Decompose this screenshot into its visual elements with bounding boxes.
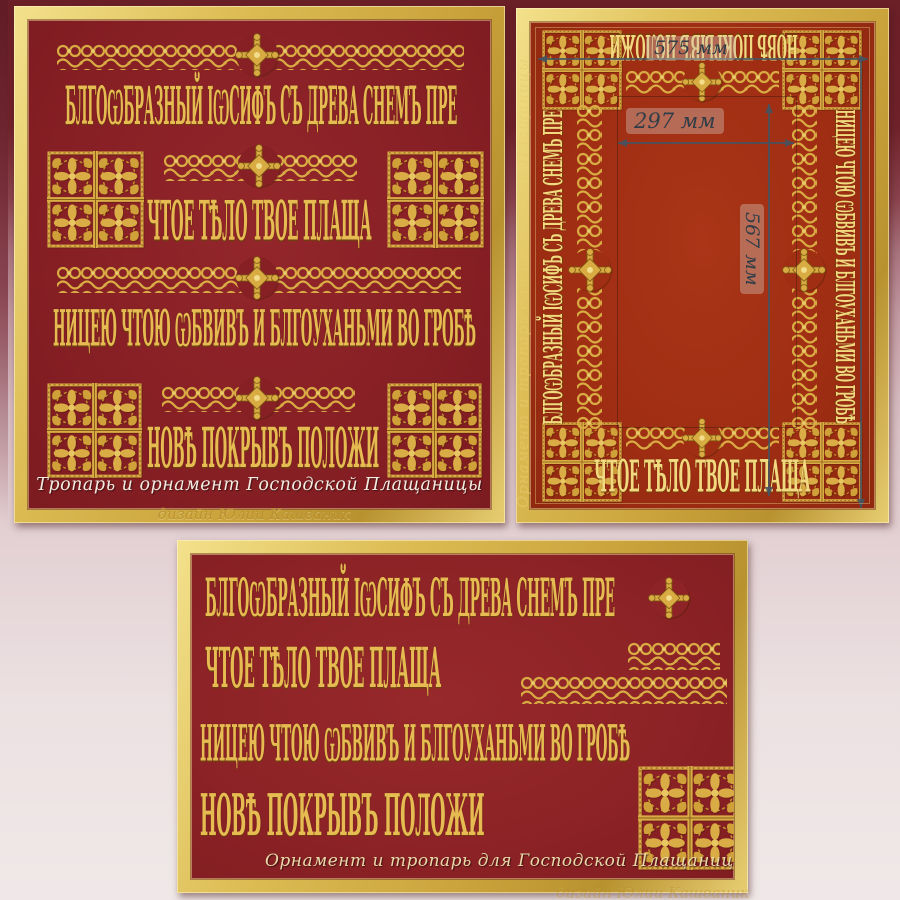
dimension-arrow: [765, 487, 773, 496]
dimension-label-inner-width: 297 мм: [626, 108, 724, 134]
lace-band-ornament: [521, 676, 727, 704]
troparion-line-4: НОВѢ ПОКРЫВЪ ПОЛОЖИ: [200, 786, 484, 844]
design-proof-sheet: БЛГОѠБРАЗНЫЙ ІѠСИФЪ СЪ ДРЕВА СНЕМЪ ПРЕ Ч…: [0, 0, 900, 900]
dimension-arrow: [857, 499, 865, 508]
corner-square-ornament: [47, 383, 142, 478]
panel-frame-field: НОВѢ ПОКРЫВЪ ПОЛОЖИ БЛГОѠБРАЗНЫЙ ІѠСИФЪ …: [530, 22, 875, 509]
corner-square-ornament: [387, 383, 482, 478]
budded-cross-icon: [235, 33, 279, 77]
left-edge-shadow: [0, 0, 8, 522]
panel-caption: Тропарь и орнамент Господской Плащаницы: [28, 475, 491, 495]
troparion-line-3: НИЦЕЮ ЧТОЮ ѠБВИВЪ И БЛГОУХАНЬМИ ВО ГРОБѢ: [53, 304, 476, 353]
designer-watermark: Орнамент и тропарь для Господской Плащан…: [514, 38, 532, 508]
dimension-line-inner-height: [768, 104, 770, 496]
troparion-line-2: ЧТОЕ ТѢЛО ТВОЕ ПЛАЩА: [147, 194, 371, 249]
budded-cross-icon: [648, 577, 690, 619]
dimension-label-inner-height: 567 мм: [740, 204, 764, 294]
dimension-arrow: [785, 139, 794, 147]
troparion-line-2: ЧТОЕ ТѢЛО ТВОЕ ПЛАЩА: [205, 642, 441, 697]
budded-cross-icon: [568, 248, 612, 292]
corner-square-ornament: [47, 151, 144, 248]
corner-square-ornament: [387, 151, 484, 248]
panel-frame-layout: НОВѢ ПОКРЫВЪ ПОЛОЖИ БЛГОѠБРАЗНЫЙ ІѠСИФЪ …: [516, 8, 889, 523]
inner-field-outline: [617, 96, 797, 428]
dimension-arrow: [538, 55, 547, 63]
lace-band-ornament: [628, 642, 720, 670]
dimension-label-outer-width: 575 мм: [646, 36, 736, 60]
designer-credit: дизайн Юлии Кашваник: [104, 505, 404, 523]
dimension-arrow: [618, 139, 627, 147]
panel-ornament-field: БЛГОѠБРАЗНЫЙ ІѠСИФЪ СЪ ДРЕВА СНЕМЪ ПРЕ Ч…: [191, 554, 734, 879]
designer-credit: дизайн Юлии Кашваник: [556, 884, 749, 900]
dimension-arrow: [765, 104, 773, 113]
panel-ornament-layout: БЛГОѠБРАЗНЫЙ ІѠСИФЪ СЪ ДРЕВА СНЕМЪ ПРЕ Ч…: [177, 540, 748, 893]
budded-cross-icon: [235, 256, 279, 300]
panel-troparion-field: БЛГОѠБРАЗНЫЙ ІѠСИФЪ СЪ ДРЕВА СНЕМЪ ПРЕ Ч…: [28, 20, 491, 509]
dimension-line-outer-height: [860, 58, 862, 508]
troparion-line-1: БЛГОѠБРАЗНЫЙ ІѠСИФЪ СЪ ДРЕВА СНЕМЪ ПРЕ: [205, 573, 615, 625]
budded-cross-icon: [235, 376, 279, 420]
panel-troparion-layout: БЛГОѠБРАЗНЫЙ ІѠСИФЪ СЪ ДРЕВА СНЕМЪ ПРЕ Ч…: [14, 6, 505, 523]
troparion-line-4: НОВѢ ПОКРЫВЪ ПОЛОЖИ: [147, 422, 379, 477]
frame-border-text-right: НИЦЕЮ ЧТОЮ ѠБВИВЪ И БЛГОУХАНЬМИ ВО ГРОБѢ: [824, 108, 864, 426]
troparion-line-3: НИЦЕЮ ЧТОЮ ѠБВИВЪ И БЛГОУХАНЬМИ ВО ГРОБѢ: [200, 719, 630, 768]
troparion-line-1: БЛГОѠБРАЗНЫЙ ІѠСИФЪ СЪ ДРЕВА СНЕМЪ ПРЕ: [65, 81, 457, 133]
frame-border-text-bottom: ЧТОЕ ТѢЛО ТВОЕ ПЛАЩА: [594, 455, 810, 499]
budded-cross-icon: [237, 144, 281, 188]
panel-caption: Орнамент и тропарь для Господской Плащан…: [265, 851, 734, 871]
